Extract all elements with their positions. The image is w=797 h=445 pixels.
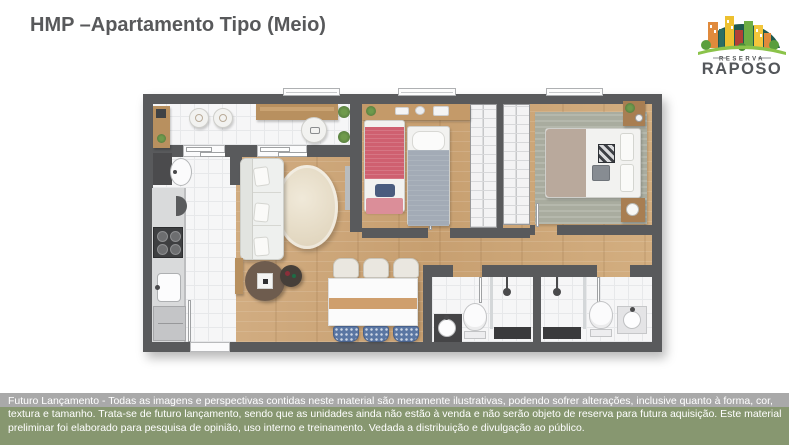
coffee-table-tray xyxy=(257,273,273,289)
gray-accent-pillow xyxy=(592,165,610,181)
sofa-pillow-2 xyxy=(253,202,270,222)
entry-door-opening xyxy=(190,342,230,352)
disclaimer-line-3: preliminar foi elaborado para pesquisa d… xyxy=(0,422,789,435)
entry-door-leaf xyxy=(188,300,191,342)
faucet-icon xyxy=(444,315,449,320)
wall-bath-middle xyxy=(533,277,541,342)
wall-bedroom2-bottom-a xyxy=(530,225,535,235)
wall-bath-left xyxy=(423,277,432,342)
bath1-toilet-tank xyxy=(464,331,486,339)
tv-panel xyxy=(345,166,350,210)
gray-blanket xyxy=(408,150,449,226)
double-bed xyxy=(545,128,641,198)
bath1-toilet xyxy=(463,303,487,331)
decor-item xyxy=(292,274,296,278)
bathroom2-door-leaf xyxy=(597,277,600,303)
nightstand-top xyxy=(623,101,645,126)
terrace-plant-bottom xyxy=(338,131,350,143)
kitchen-sink xyxy=(157,273,181,302)
bath1-shower-base xyxy=(494,327,531,339)
bench-top xyxy=(260,107,334,111)
blue-pillow xyxy=(375,184,395,197)
stove xyxy=(153,227,183,258)
bath2-shower-glass xyxy=(583,277,586,329)
wall-bedroom1-bottom-b xyxy=(450,228,530,238)
dining-chair-top-3 xyxy=(393,258,419,278)
disclaimer-line-2: textura e tamanho. Trata-se de futuro la… xyxy=(0,408,789,421)
bath2-toilet xyxy=(589,301,613,329)
bath1-shower-head-icon xyxy=(503,288,511,296)
bed-pillow xyxy=(620,133,634,161)
terrace-sliding-door-2 xyxy=(257,145,307,157)
terrace-pouf-1 xyxy=(189,108,209,128)
terrace-bench xyxy=(256,104,338,120)
wall-bottom-left xyxy=(143,342,190,352)
bath1-sink-basin xyxy=(438,319,456,337)
twin-bed-gray xyxy=(407,126,450,226)
reserva-raposo-logo: RESERVA RAPOSO xyxy=(693,8,791,76)
terrace-sliding-door-1 xyxy=(183,145,225,157)
bedroom2-wardrobe xyxy=(503,104,530,225)
terrace-decor-shelf xyxy=(153,106,170,148)
wall-living-bedroom1 xyxy=(350,104,362,232)
faucet-icon xyxy=(630,307,635,312)
laundry-tank xyxy=(170,158,192,186)
sofa xyxy=(240,158,284,260)
window-bedroom-1 xyxy=(398,88,456,96)
page-title: HMP –Apartamento Tipo (Meio) xyxy=(30,14,326,37)
bath2-sink-basin xyxy=(623,311,641,329)
dining-chair-bottom-2 xyxy=(363,326,389,342)
slide: HMP –Apartamento Tipo (Meio) RESERVA RAP… xyxy=(0,0,797,445)
living-round-rug xyxy=(276,165,338,249)
bedroom1-wardrobe xyxy=(470,104,497,228)
sofa-pillow-3 xyxy=(253,236,270,256)
side-console xyxy=(235,258,243,294)
decor-item xyxy=(285,271,290,276)
tray-item xyxy=(263,279,268,284)
pouf-detail xyxy=(219,114,227,122)
bath2-shower-base xyxy=(543,327,581,339)
bath2-toilet-tank xyxy=(590,329,612,337)
plant-icon xyxy=(366,106,376,116)
sofa-pillow-1 xyxy=(253,166,270,187)
clock-icon xyxy=(635,114,643,122)
fridge-line xyxy=(158,323,183,324)
coffee-table-small xyxy=(280,265,302,287)
bed-pillow xyxy=(620,164,634,192)
wall-right xyxy=(652,94,662,352)
wall-terrace-3 xyxy=(307,145,350,157)
wall-terrace-2 xyxy=(225,145,257,157)
bed-pillow xyxy=(412,131,445,151)
desk-item xyxy=(433,106,449,116)
nightstand-bottom xyxy=(621,198,645,222)
wall-bath-top-c xyxy=(630,265,652,277)
checkered-pillow xyxy=(598,144,615,163)
dining-chair-bottom-1 xyxy=(333,326,359,342)
disclaimer-line-1: Futuro Lançamento - Todas as imagens e p… xyxy=(0,393,789,408)
floor-plan xyxy=(143,86,662,356)
bathroom1-door-leaf xyxy=(479,277,482,303)
dining-table xyxy=(328,278,418,326)
bedroom1-desk-shelf xyxy=(362,104,470,120)
sink-faucet-icon xyxy=(155,285,160,290)
wall-bath-top-a xyxy=(423,265,453,277)
tank-faucet-icon xyxy=(173,170,177,174)
pink-bedside-rug xyxy=(366,198,403,214)
table-item xyxy=(310,127,320,134)
coffee-table-large xyxy=(245,261,285,301)
window-terrace xyxy=(283,88,340,96)
plant-icon xyxy=(625,103,635,113)
wall-bath-top-b xyxy=(482,265,597,277)
dining-chair-top-1 xyxy=(333,258,359,278)
wall-bedroom1-bottom-a xyxy=(362,228,428,238)
picture-frame-icon xyxy=(156,109,166,118)
taupe-blanket xyxy=(546,129,586,197)
desk-item xyxy=(415,106,425,115)
bath2-sink-counter xyxy=(617,306,647,334)
disclaimer-band: Futuro Lançamento - Todas as imagens e p… xyxy=(0,393,789,445)
bedroom2-door-leaf xyxy=(536,203,539,227)
bath1-shower-glass xyxy=(490,277,493,329)
window-bedroom-2 xyxy=(546,88,603,96)
bath2-shower-head-icon xyxy=(553,288,561,296)
lamp-icon xyxy=(626,203,639,216)
bath1-sink-counter xyxy=(434,314,462,342)
wall-bottom-right xyxy=(230,342,662,352)
dining-chair-bottom-3 xyxy=(393,326,419,342)
pink-blanket xyxy=(365,127,404,179)
dining-chair-top-2 xyxy=(363,258,389,278)
pouf-detail xyxy=(195,114,203,122)
desk-item xyxy=(395,107,409,115)
wall-bedroom2-bottom-b xyxy=(557,225,652,235)
logo-raposo-text: RAPOSO xyxy=(702,60,783,76)
terrace-plant-top xyxy=(338,106,350,118)
refrigerator xyxy=(153,306,186,341)
terrace-round-table xyxy=(301,117,327,143)
dining-table-wood-stripe xyxy=(329,298,417,309)
plant-icon xyxy=(157,134,166,143)
terrace-pouf-2 xyxy=(213,108,233,128)
